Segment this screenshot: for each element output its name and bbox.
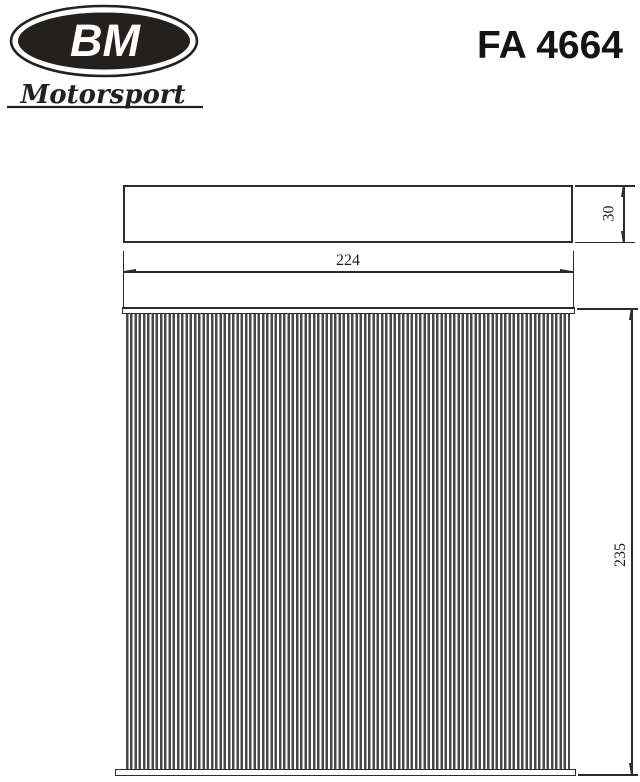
logo-motorsport-text: Motorsport	[19, 80, 185, 110]
dim-depth-arrow-down	[621, 231, 625, 243]
part-number: FA 4664	[477, 24, 623, 68]
dim-depth-arrow-up	[621, 185, 625, 197]
dim-width-extension-right	[573, 251, 575, 308]
dim-height-label: 235	[611, 532, 631, 578]
filter-top-frame	[122, 307, 575, 314]
dim-height-line	[631, 309, 633, 774]
side-view-rect	[123, 185, 573, 243]
dim-width-line	[124, 271, 573, 273]
logo-bm-text: BM	[70, 15, 141, 66]
dim-width-arrow-left	[124, 269, 136, 273]
dim-height-arrow-down	[629, 763, 633, 775]
dim-height-arrow-up	[629, 308, 633, 320]
dim-width-arrow-right	[560, 269, 572, 273]
dim-depth-label: 30	[600, 197, 619, 231]
dim-depth-extension-top	[575, 185, 635, 187]
page: BM Motorsport FA 4664 30 224 235	[0, 0, 640, 782]
dim-width-extension-left	[123, 251, 125, 308]
dim-width-label: 224	[320, 252, 376, 270]
filter-bottom-frame	[115, 769, 576, 776]
filter-pleats	[126, 314, 570, 770]
dim-depth-extension-bottom	[575, 242, 635, 244]
brand-logo: BM Motorsport	[4, 2, 210, 116]
